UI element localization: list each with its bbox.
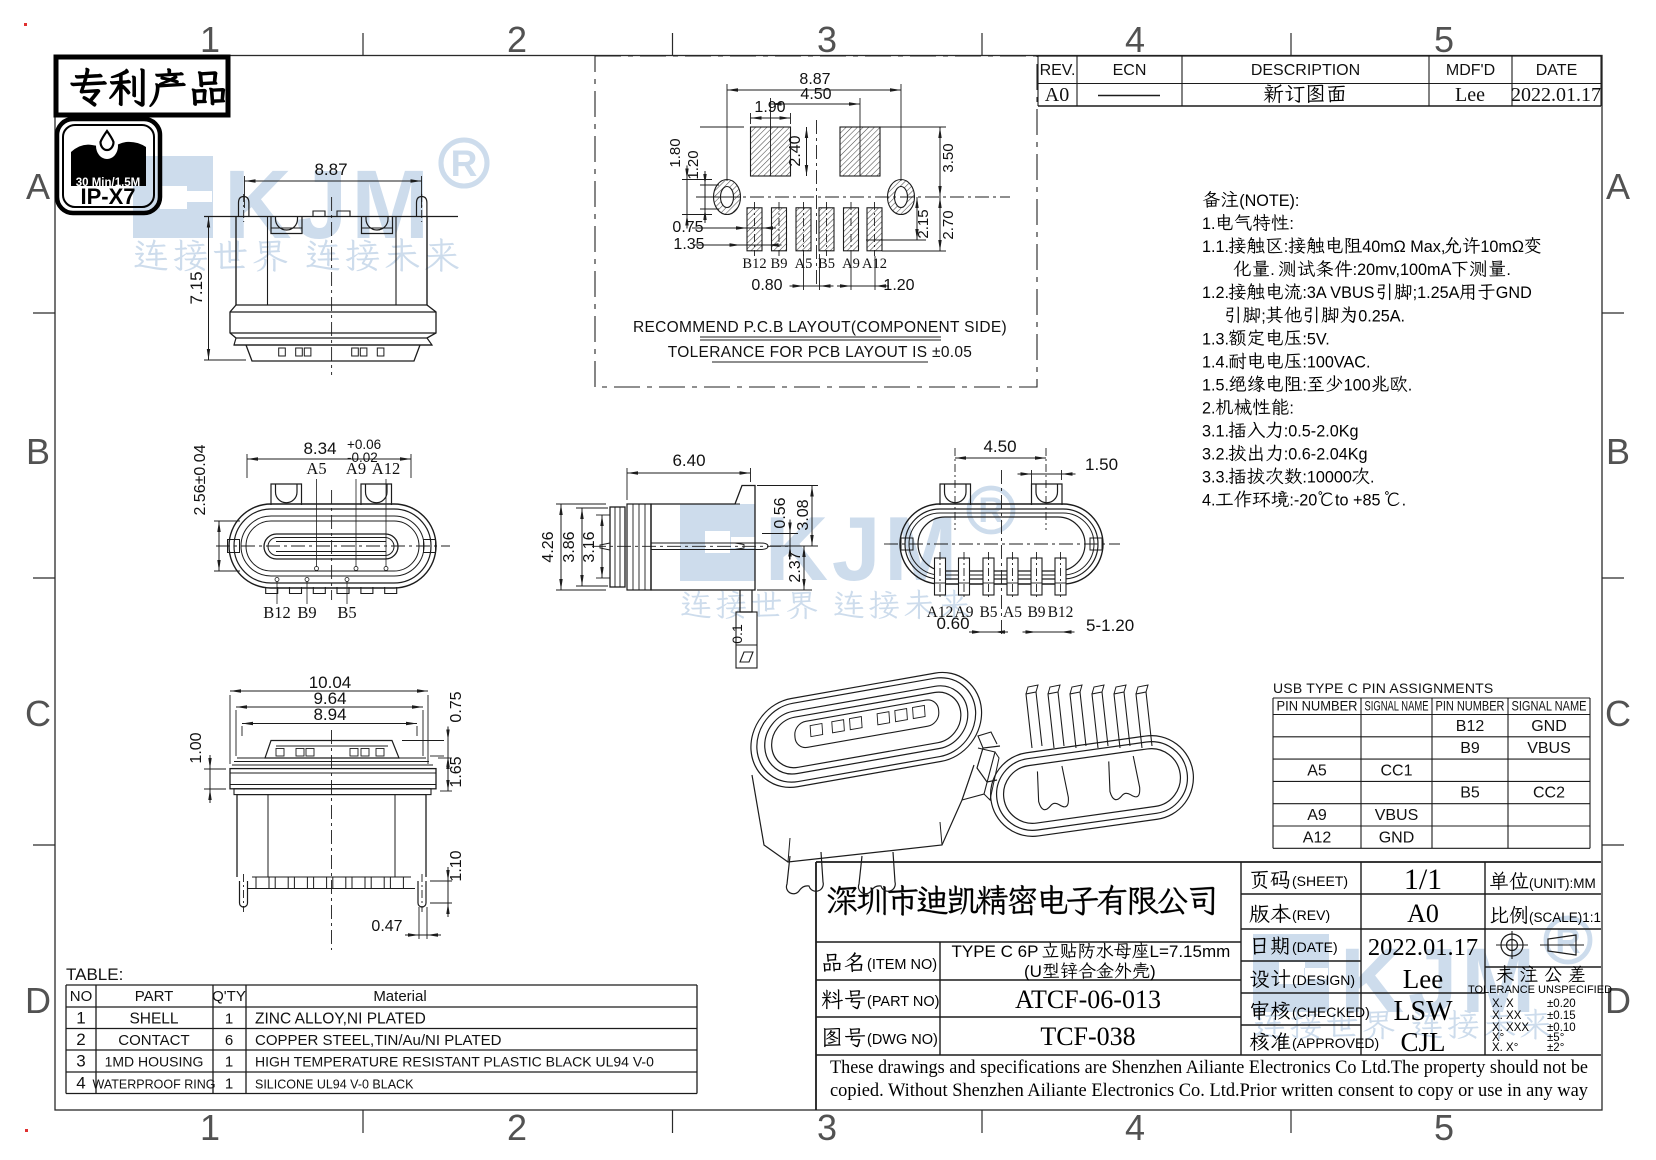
svg-text:copied. Without Shenzhen Ailia: copied. Without Shenzhen Ailiante Electr… — [830, 1080, 1588, 1101]
svg-text:(DATE): (DATE) — [1292, 939, 1338, 955]
svg-text:(DESIGN): (DESIGN) — [1292, 972, 1355, 988]
svg-text:3.50: 3.50 — [940, 143, 957, 172]
svg-text:4: 4 — [1125, 19, 1145, 60]
svg-text:0.25A.: 0.25A. — [1358, 307, 1405, 325]
svg-text:2: 2 — [507, 1107, 527, 1148]
svg-text:(U: (U — [1024, 962, 1042, 981]
svg-text:0.47: 0.47 — [371, 918, 402, 935]
svg-text:.: . — [1506, 261, 1511, 279]
svg-text:DATE: DATE — [1536, 62, 1577, 79]
svg-text:3: 3 — [817, 1107, 837, 1148]
svg-text:B9: B9 — [297, 603, 316, 622]
svg-text:SHELL: SHELL — [129, 1011, 178, 1028]
svg-text:10mΩ: 10mΩ — [1480, 238, 1524, 256]
svg-text:A5: A5 — [1003, 604, 1022, 621]
svg-text:2.15: 2.15 — [915, 209, 932, 238]
svg-text:X. X°: X. X° — [1492, 1042, 1518, 1054]
svg-text::100VAC.: :100VAC. — [1302, 353, 1370, 371]
svg-text:SIGNAL NAME: SIGNAL NAME — [1512, 699, 1587, 714]
svg-text::: : — [1289, 215, 1294, 233]
svg-text:CC1: CC1 — [1380, 762, 1412, 779]
svg-text:1: 1 — [225, 1054, 233, 1071]
svg-text:B9: B9 — [1460, 740, 1480, 757]
svg-text:(UNIT):MM: (UNIT):MM — [1529, 876, 1596, 891]
svg-text:2.70: 2.70 — [940, 210, 957, 239]
svg-text:2022.01.17: 2022.01.17 — [1511, 84, 1601, 106]
svg-text:4.50: 4.50 — [983, 437, 1016, 456]
svg-text:SILICONE UL94 V-0 BLACK: SILICONE UL94 V-0 BLACK — [255, 1078, 414, 1092]
svg-text:VBUS: VBUS — [1527, 740, 1571, 757]
svg-text:GND: GND — [1379, 829, 1415, 846]
svg-text:1: 1 — [200, 19, 220, 60]
svg-text:REV.: REV. — [1040, 62, 1076, 79]
svg-text:1.4.: 1.4. — [1202, 353, 1229, 371]
svg-text:3.2.: 3.2. — [1202, 446, 1229, 464]
svg-text:.: . — [1270, 261, 1275, 279]
svg-text:A9: A9 — [1307, 807, 1327, 824]
svg-text:3: 3 — [76, 1052, 85, 1071]
svg-text:ZINC ALLOY,NI PLATED: ZINC ALLOY,NI PLATED — [255, 1011, 426, 1028]
svg-text:CC2: CC2 — [1533, 785, 1565, 802]
svg-text:(SCALE)1:1: (SCALE)1:1 — [1529, 910, 1601, 925]
svg-text:3: 3 — [817, 19, 837, 60]
svg-text:ATCF-06-013: ATCF-06-013 — [1015, 985, 1161, 1014]
svg-text:): ) — [1150, 962, 1156, 981]
svg-text:100: 100 — [1344, 376, 1371, 394]
svg-text::5V.: :5V. — [1302, 330, 1329, 348]
svg-text:(APPROVED): (APPROVED) — [1292, 1035, 1379, 1051]
svg-text:1: 1 — [76, 1009, 85, 1028]
svg-text:B12: B12 — [1456, 718, 1485, 735]
svg-text:7.15: 7.15 — [187, 271, 206, 304]
svg-text:40mΩ Max,: 40mΩ Max, — [1362, 238, 1445, 256]
svg-text:1.80: 1.80 — [667, 138, 684, 167]
svg-text:IP-X7: IP-X7 — [80, 184, 135, 209]
svg-text:3.86: 3.86 — [561, 531, 578, 562]
svg-text:±0.15: ±0.15 — [1547, 1010, 1576, 1022]
svg-text:.: . — [1370, 469, 1375, 487]
svg-text:HIGH TEMPERATURE RESISTANT PLA: HIGH TEMPERATURE RESISTANT PLASTIC BLACK… — [255, 1054, 654, 1070]
svg-text:1: 1 — [225, 1011, 233, 1028]
svg-text:LSW: LSW — [1393, 996, 1453, 1027]
svg-text:8.94: 8.94 — [313, 705, 346, 724]
svg-text::: : — [1289, 400, 1294, 418]
svg-text:D: D — [25, 980, 51, 1021]
svg-text:RECOMMEND P.C.B LAYOUT(COMPO: RECOMMEND P.C.B LAYOUT(COMPONENT SIDE) — [633, 319, 1007, 336]
svg-text:B12: B12 — [742, 256, 766, 272]
svg-text:1: 1 — [200, 1107, 220, 1148]
svg-text::3A VBUS: :3A VBUS — [1302, 284, 1374, 302]
svg-text::10000: :10000 — [1302, 469, 1352, 487]
svg-text:C: C — [1605, 693, 1631, 734]
svg-text:1.20: 1.20 — [883, 277, 914, 294]
svg-text:TABLE:: TABLE: — [66, 965, 123, 984]
svg-text:1MD HOUSING: 1MD HOUSING — [105, 1054, 204, 1070]
svg-text:B5: B5 — [818, 256, 835, 272]
svg-text:MDF'D: MDF'D — [1446, 62, 1495, 79]
svg-text:(NOTE):: (NOTE): — [1239, 192, 1299, 210]
svg-text:X. X: X. X — [1492, 998, 1514, 1010]
svg-text:B12: B12 — [1048, 604, 1074, 621]
svg-text:6: 6 — [225, 1032, 233, 1049]
svg-text::-20: :-20 — [1289, 492, 1317, 510]
svg-text:5: 5 — [1434, 19, 1454, 60]
svg-text:A0: A0 — [1407, 899, 1439, 928]
svg-text:1.10: 1.10 — [448, 850, 465, 881]
svg-text::: : — [1302, 376, 1307, 394]
svg-text:WATERPROOF RING: WATERPROOF RING — [93, 1078, 216, 1092]
svg-text:B12: B12 — [263, 603, 291, 622]
svg-text:±0.20: ±0.20 — [1547, 998, 1576, 1010]
svg-text:PIN NUMBER: PIN NUMBER — [1436, 699, 1505, 714]
svg-text:B5: B5 — [337, 603, 356, 622]
svg-text:0.60: 0.60 — [936, 614, 969, 633]
svg-text:6.40: 6.40 — [672, 451, 705, 470]
svg-text:4.50: 4.50 — [800, 86, 831, 103]
svg-text:R: R — [451, 143, 478, 184]
svg-text:1.3.: 1.3. — [1202, 330, 1229, 348]
svg-text:4: 4 — [76, 1074, 85, 1093]
svg-text:TOLERANCE UNSPECIFIED: TOLERANCE UNSPECIFIED — [1468, 984, 1612, 996]
svg-text:5: 5 — [1434, 1107, 1454, 1148]
svg-text:A5: A5 — [306, 459, 326, 478]
svg-text:Material: Material — [373, 988, 426, 1005]
svg-text::20mv,100mA: :20mv,100mA — [1353, 261, 1452, 279]
svg-text:B5: B5 — [979, 604, 997, 621]
svg-text:B5: B5 — [1460, 785, 1480, 802]
svg-text:to +85: to +85 — [1335, 492, 1380, 510]
svg-text:COPPER STEEL,TIN/Au/NI PLATED: COPPER STEEL,TIN/Au/NI PLATED — [255, 1032, 502, 1049]
svg-text:These drawings and specificati: These drawings and specifications are Sh… — [830, 1057, 1588, 1078]
svg-text:B: B — [1606, 431, 1630, 472]
svg-text:L=7.15mm: L=7.15mm — [1150, 942, 1231, 961]
svg-text:USB TYPE C PIN ASSIGNMENTS: USB TYPE C PIN ASSIGNMENTS — [1273, 680, 1493, 696]
svg-text:Q'TY: Q'TY — [212, 988, 246, 1005]
svg-text:4.26: 4.26 — [540, 531, 557, 562]
svg-text:3.16: 3.16 — [581, 531, 598, 562]
svg-text:A: A — [26, 166, 50, 207]
svg-text:C: C — [25, 693, 51, 734]
svg-text:(ITEM NO): (ITEM NO) — [867, 957, 937, 973]
svg-text:VBUS: VBUS — [1375, 807, 1419, 824]
svg-text:0.56: 0.56 — [772, 497, 789, 528]
svg-text:(CHECKED): (CHECKED) — [1292, 1004, 1370, 1020]
svg-text:3.3.: 3.3. — [1202, 469, 1229, 487]
svg-text:2: 2 — [76, 1030, 85, 1049]
svg-text:0.75: 0.75 — [672, 219, 703, 236]
svg-text:0.75: 0.75 — [448, 691, 465, 722]
svg-text:R: R — [978, 491, 1003, 530]
svg-text:CONTACT: CONTACT — [118, 1032, 189, 1049]
svg-text:2.40: 2.40 — [787, 135, 804, 166]
svg-text:Lee: Lee — [1455, 84, 1485, 106]
svg-text:GND: GND — [1531, 718, 1567, 735]
svg-text:0.1: 0.1 — [729, 624, 745, 644]
svg-text:0.80: 0.80 — [751, 277, 782, 294]
svg-text:.: . — [1408, 376, 1413, 394]
svg-text:R: R — [1555, 922, 1580, 961]
svg-text:4: 4 — [1125, 1107, 1145, 1148]
svg-text:4.: 4. — [1202, 492, 1216, 510]
svg-text:TOLERANCE FOR PCB LAYOUT I: TOLERANCE FOR PCB LAYOUT IS ±0.05 — [668, 344, 972, 361]
svg-text:;: ; — [1261, 307, 1266, 325]
svg-text:TYPE C 6P: TYPE C 6P — [952, 942, 1039, 961]
svg-text::0.5-2.0Kg: :0.5-2.0Kg — [1284, 423, 1359, 441]
svg-text:B9: B9 — [1027, 604, 1045, 621]
svg-text:1.50: 1.50 — [1085, 455, 1118, 474]
svg-text:(SHEET): (SHEET) — [1292, 873, 1348, 889]
svg-text:8.87: 8.87 — [314, 160, 347, 179]
svg-text:1.5.: 1.5. — [1202, 376, 1229, 394]
svg-text:1/1: 1/1 — [1404, 863, 1442, 896]
svg-text:(PART NO): (PART NO) — [867, 994, 940, 1010]
svg-text:X. XX: X. XX — [1492, 1010, 1522, 1022]
svg-text:Lee: Lee — [1403, 964, 1443, 994]
svg-text:PART: PART — [135, 988, 174, 1005]
svg-text:1.65: 1.65 — [448, 756, 465, 787]
svg-text:1.35: 1.35 — [673, 236, 704, 253]
svg-text:(DWG NO): (DWG NO) — [867, 1032, 938, 1048]
svg-text:A9: A9 — [346, 459, 366, 478]
svg-text:A0: A0 — [1045, 84, 1069, 106]
svg-text:A5: A5 — [1307, 762, 1327, 779]
svg-text:(REV): (REV) — [1292, 907, 1330, 923]
svg-text:SIGNAL NAME: SIGNAL NAME — [1365, 699, 1429, 714]
svg-text:CJL: CJL — [1400, 1027, 1445, 1057]
svg-text:;1.25A: ;1.25A — [1413, 284, 1460, 302]
svg-text:TCF-038: TCF-038 — [1040, 1022, 1135, 1051]
svg-text:ECN: ECN — [1113, 62, 1147, 79]
svg-text:1.: 1. — [1202, 215, 1216, 233]
svg-text:B9: B9 — [771, 256, 788, 272]
svg-text:.: . — [1402, 492, 1407, 510]
svg-text:2.: 2. — [1202, 400, 1216, 418]
svg-text:2.56±0.04: 2.56±0.04 — [192, 444, 209, 515]
svg-text:±2°: ±2° — [1547, 1042, 1564, 1054]
svg-text:A12: A12 — [1303, 829, 1332, 846]
svg-text:A12: A12 — [372, 459, 400, 478]
svg-text:B: B — [26, 431, 50, 472]
svg-text:PIN NUMBER: PIN NUMBER — [1277, 699, 1358, 714]
svg-text:A12: A12 — [862, 256, 887, 272]
svg-text:1.90: 1.90 — [754, 99, 785, 116]
svg-text:1: 1 — [225, 1076, 233, 1093]
svg-text::0.6-2.04Kg: :0.6-2.04Kg — [1284, 446, 1368, 464]
svg-text:1.20: 1.20 — [685, 150, 702, 179]
svg-text:1.00: 1.00 — [188, 732, 205, 763]
svg-text:8.34: 8.34 — [303, 439, 336, 458]
svg-text:3.08: 3.08 — [795, 499, 812, 530]
svg-text:2: 2 — [507, 19, 527, 60]
svg-text:DESCRIPTION: DESCRIPTION — [1251, 62, 1360, 79]
svg-text:2022.01.17: 2022.01.17 — [1368, 934, 1478, 961]
svg-text:GND: GND — [1496, 284, 1532, 302]
svg-text:NO: NO — [70, 988, 93, 1005]
svg-text:1.1.: 1.1. — [1202, 238, 1229, 256]
svg-text:A: A — [1606, 166, 1630, 207]
svg-text:1.2.: 1.2. — [1202, 284, 1229, 302]
svg-text:2.37: 2.37 — [787, 551, 804, 582]
svg-text:3.1.: 3.1. — [1202, 423, 1229, 441]
svg-text::: : — [1284, 238, 1289, 256]
svg-text:5-1.20: 5-1.20 — [1086, 616, 1134, 635]
